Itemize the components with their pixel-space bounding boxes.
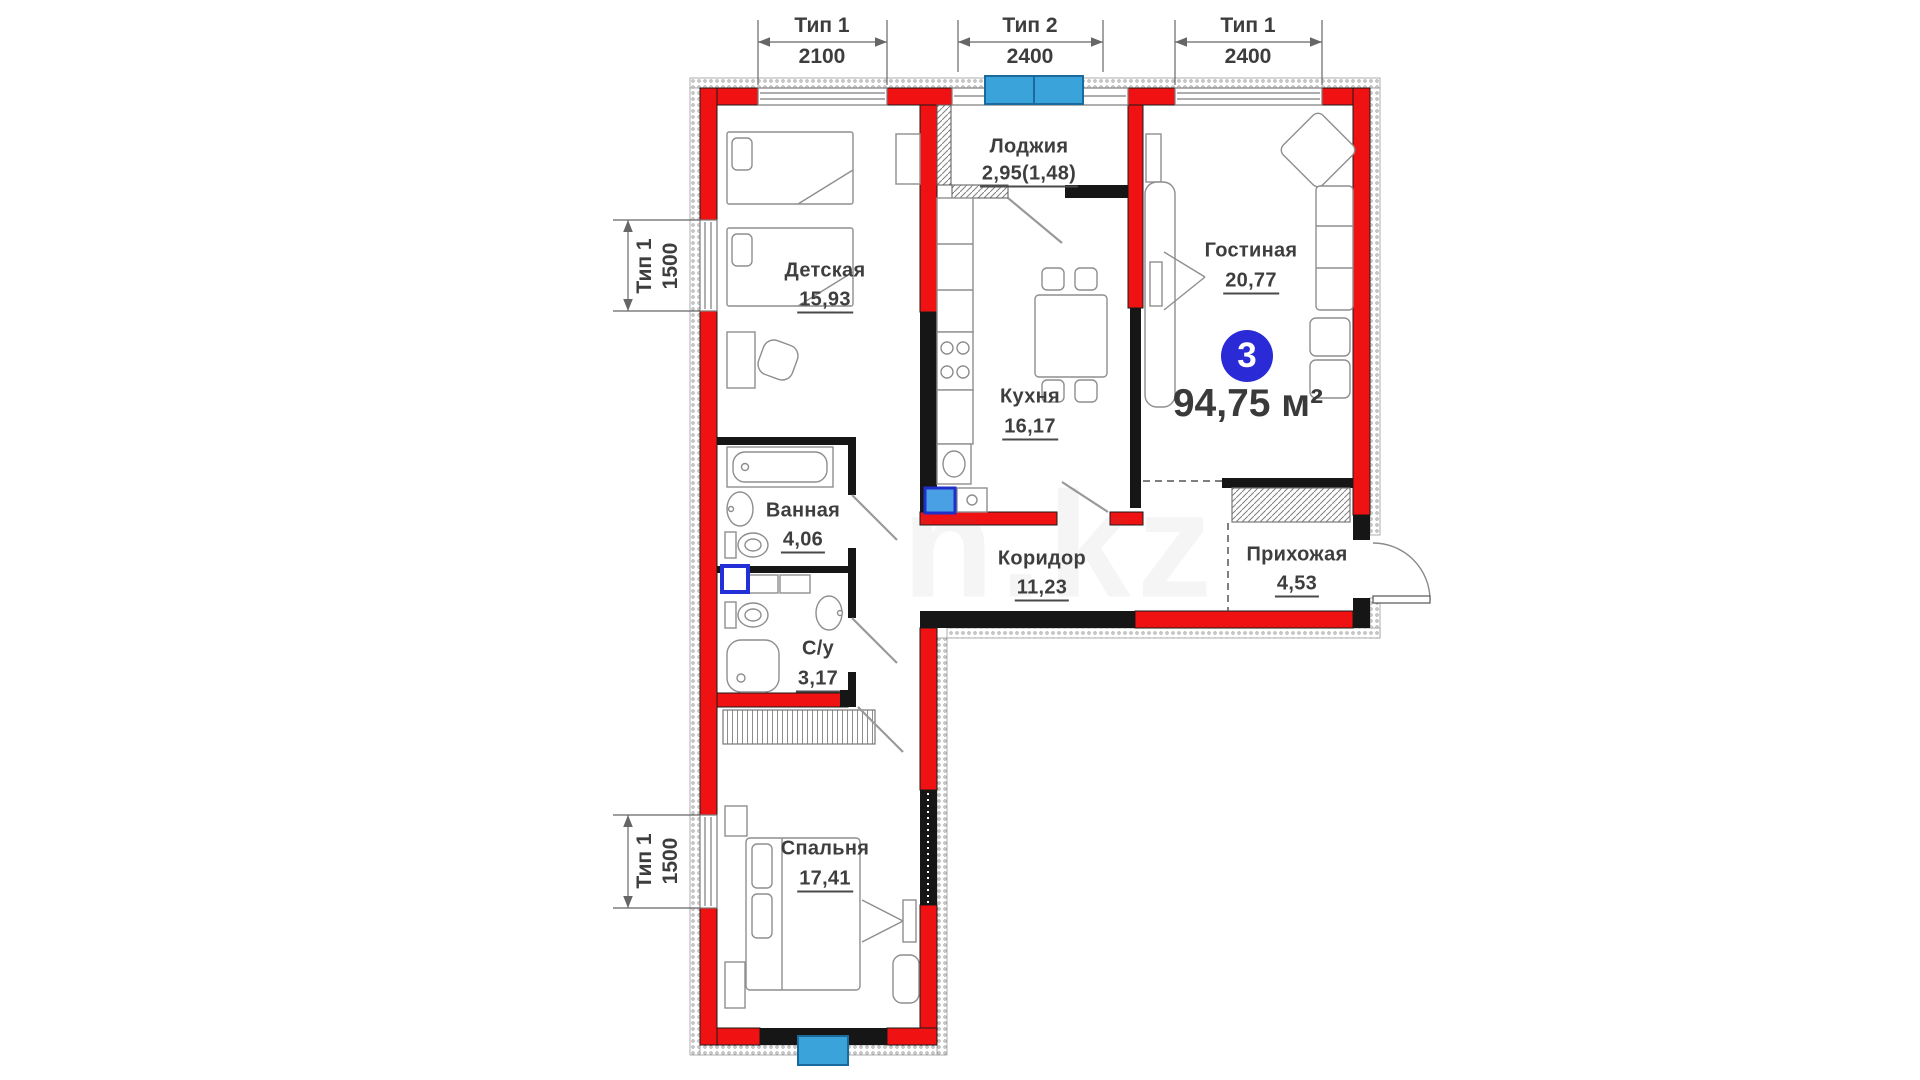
room-label-wc: С/у [802, 638, 834, 661]
dim-top-1-type: Тип 1 [794, 14, 849, 38]
dim-top-2-size: 2400 [1007, 45, 1054, 69]
room-area-loggia: 2,95(1,48) [980, 163, 1078, 186]
apartment-number-badge: 3 [1221, 330, 1273, 382]
room-area-loggia-value: 2,95(1,48) [980, 163, 1078, 188]
dim-left-1-size: 1500 [659, 243, 683, 290]
dim-left-1-type: Тип 1 [633, 238, 657, 293]
bedroom-furniture [725, 806, 919, 1008]
ac-unit-bottom [798, 1036, 848, 1065]
room-area-living-room-value: 20,77 [1223, 270, 1279, 295]
room-area-kids-room: 15,93 [797, 289, 853, 312]
dim-left-2-type: Тип 1 [633, 833, 657, 888]
room-label-corridor: Коридор [998, 548, 1086, 571]
room-label-hallway: Прихожая [1246, 544, 1347, 567]
dim-top-2-type: Тип 2 [1002, 14, 1057, 38]
hallway-wardrobe [1232, 488, 1350, 522]
room-area-living-room: 20,77 [1223, 270, 1279, 293]
dim-left-2-size: 1500 [659, 838, 683, 885]
room-label-kitchen: Кухня [1000, 386, 1060, 409]
ac-unit-top [985, 76, 1083, 104]
room-area-hallway: 4,53 [1275, 573, 1319, 596]
room-area-hallway-value: 4,53 [1275, 573, 1319, 598]
room-area-kids-room-value: 15,93 [797, 289, 853, 314]
watermark: n.kz [902, 459, 1218, 632]
bedroom-wardrobe [723, 710, 875, 744]
room-area-corridor: 11,23 [1015, 577, 1069, 600]
room-area-bedroom-value: 17,41 [797, 868, 853, 893]
vent-shaft-bathroom [722, 566, 748, 592]
room-label-kids-room: Детская [785, 260, 866, 283]
total-area-label: 94,75 м² [1173, 382, 1323, 426]
room-area-kitchen-value: 16,17 [1002, 416, 1058, 441]
room-label-bathroom: Ванная [766, 500, 840, 523]
dim-top-1-size: 2100 [799, 45, 846, 69]
floor-plan-page: n.kz Тип 1 2100 Тип 2 2400 Тип 1 2400 Ти… [0, 0, 1920, 1080]
room-label-loggia: Лоджия [990, 136, 1069, 159]
room-area-wc: 3,17 [796, 668, 840, 691]
dim-top-3-size: 2400 [1225, 45, 1272, 69]
room-area-bathroom-value: 4,06 [781, 529, 825, 554]
room-area-bathroom: 4,06 [781, 529, 825, 552]
room-area-kitchen: 16,17 [1002, 416, 1058, 439]
room-area-corridor-value: 11,23 [1015, 577, 1069, 602]
room-label-living-room: Гостиная [1205, 240, 1298, 263]
room-label-bedroom: Спальня [781, 838, 870, 861]
room-area-wc-value: 3,17 [796, 668, 840, 693]
dim-top-3-type: Тип 1 [1220, 14, 1275, 38]
room-area-bedroom: 17,41 [797, 868, 853, 891]
entrance-door [1373, 543, 1430, 603]
